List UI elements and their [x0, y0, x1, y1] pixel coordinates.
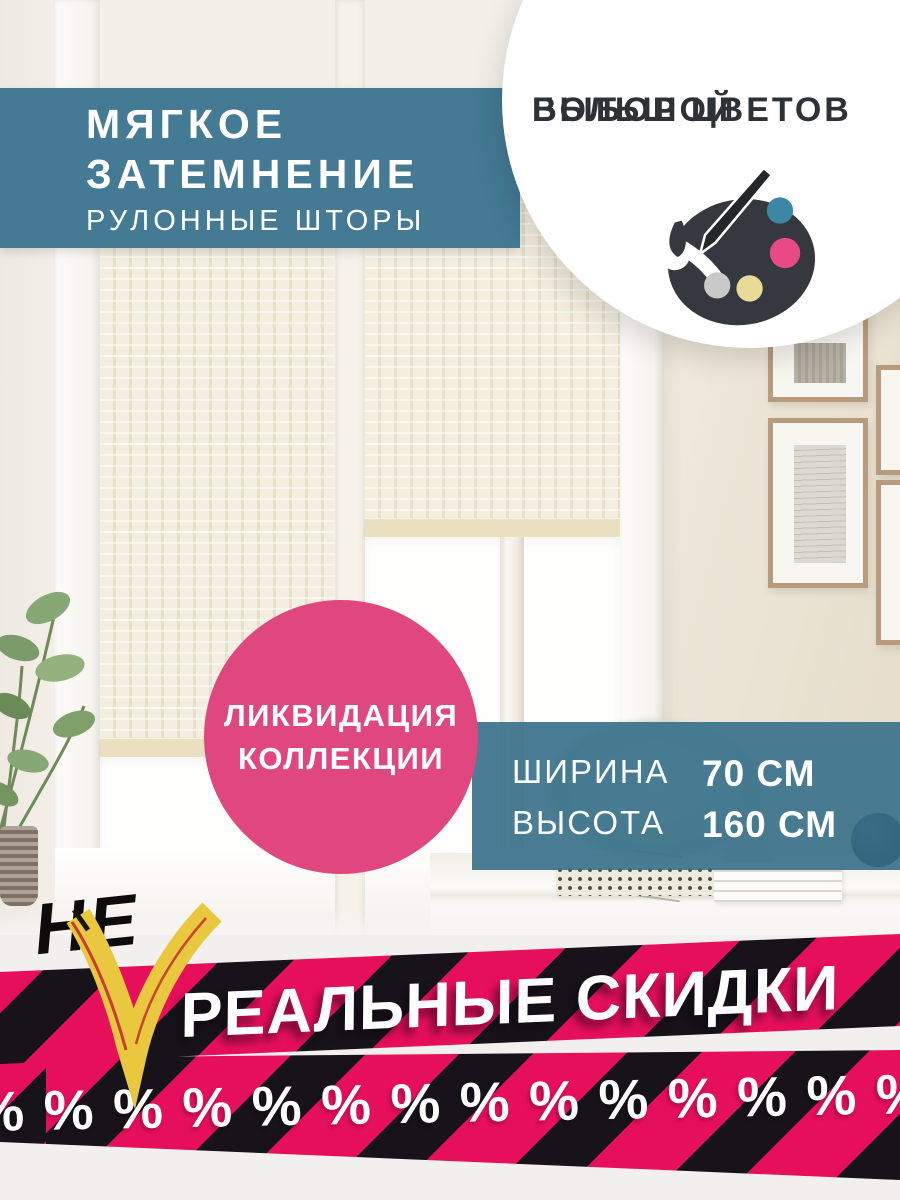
picture-frame [876, 365, 900, 475]
frame-artwork [794, 343, 846, 383]
height-value: 160 СМ [702, 804, 900, 846]
header-title-line2: ЗАТЕМНЕНИЕ [86, 149, 520, 199]
color-badge-line2: ВЫБОР ЦВЕТОВ [532, 90, 852, 131]
width-label: ШИРИНА [512, 753, 702, 795]
sale-circle-badge: ЛИКВИДАЦИЯ КОЛЛЕКЦИИ [204, 600, 478, 874]
picture-frame [768, 418, 868, 588]
header-banner: МЯГКОЕ ЗАТЕМНЕНИЕ РУЛОННЫЕ ШТОРЫ [0, 88, 520, 248]
dimensions-panel: ШИРИНА 70 СМ ВЫСОТА 160 СМ [472, 722, 900, 870]
height-label: ВЫСОТА [512, 804, 702, 846]
width-value: 70 СМ [702, 753, 900, 795]
frame-artwork [794, 445, 846, 563]
sale-circle-line1: ЛИКВИДАЦИЯ [224, 698, 458, 734]
picture-frame [876, 480, 900, 645]
plant-icon [0, 556, 113, 851]
patterned-box [556, 866, 718, 896]
header-title-line1: МЯГКОЕ [86, 99, 520, 149]
header-subtitle: РУЛОННЫЕ ШТОРЫ [86, 205, 520, 238]
palette-icon [652, 166, 830, 338]
checkmark-icon [60, 896, 230, 1091]
promo-image: ШИРИНА 70 СМ ВЫСОТА 160 СМ ЛИКВИДАЦИЯ КО… [0, 0, 900, 1200]
sale-circle-line2: КОЛЛЕКЦИИ [238, 741, 444, 777]
blind-hem-bar [365, 518, 620, 537]
